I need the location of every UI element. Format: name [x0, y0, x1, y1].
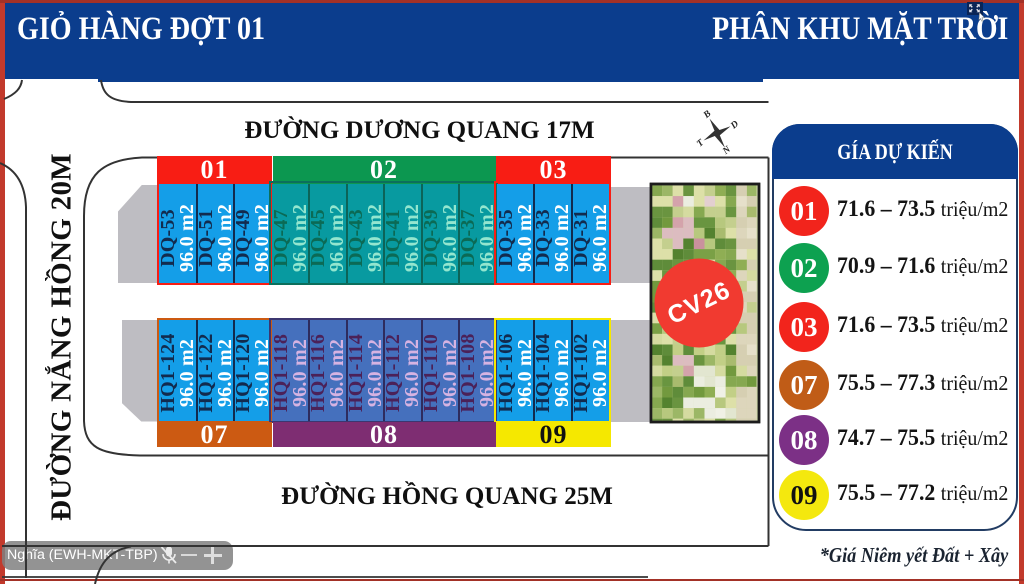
- svg-text:N: N: [721, 144, 734, 157]
